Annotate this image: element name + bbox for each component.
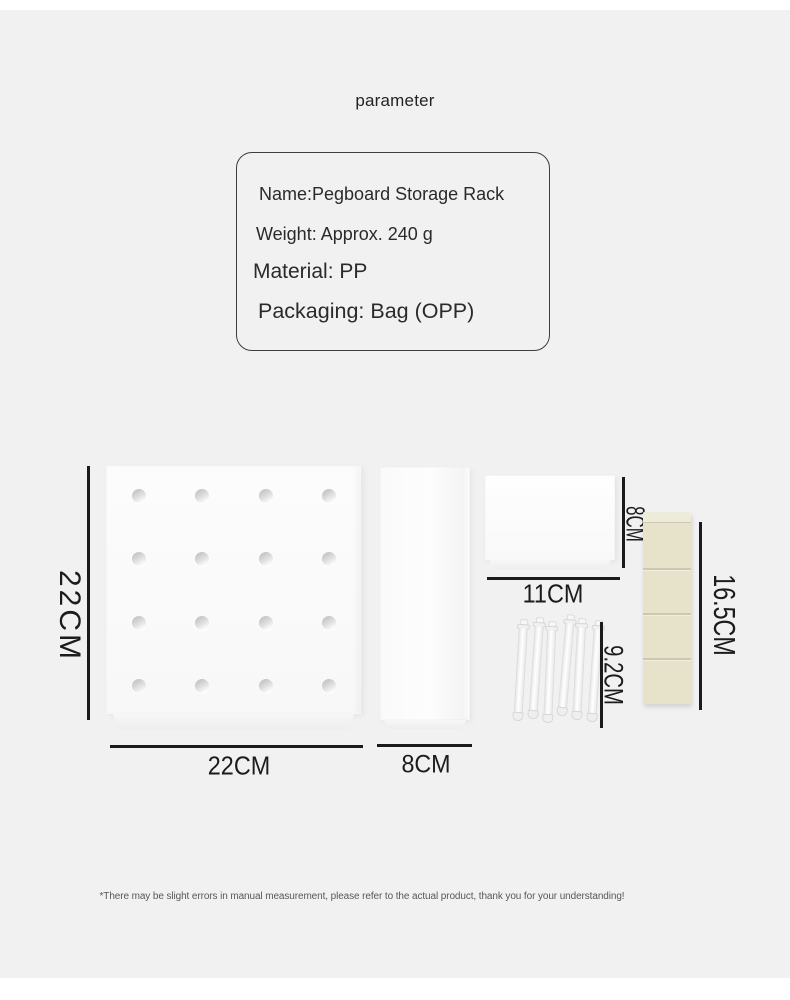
pegs-height-label: 9.2CM (598, 645, 629, 705)
pegboard-width-label: 22CM (208, 751, 270, 782)
disclaimer-text: *There may be slight errors in manual me… (0, 891, 724, 902)
peg-rod (573, 627, 586, 712)
side-panel (380, 467, 470, 720)
product-parameter-page: parameter Name:Pegboard Storage Rack Wei… (0, 0, 790, 1000)
peg-foot (586, 713, 598, 723)
adhesive-tape (643, 512, 691, 704)
peg-foot (512, 712, 524, 722)
side-panel-bottom-edge (384, 720, 466, 729)
side-panel-width-dimension-line (377, 744, 472, 747)
peg-hole (195, 552, 209, 566)
peg-hole (322, 679, 336, 693)
peg-hole (259, 616, 273, 630)
pegs-group (511, 614, 603, 732)
pegboard (106, 465, 361, 714)
peg-hole (195, 679, 209, 693)
tape-height-dimension-line (699, 522, 702, 710)
pegboard-height-label: 22CM (52, 570, 86, 662)
peg-hole (195, 489, 209, 503)
spec-box: Name:Pegboard Storage Rack Weight: Appro… (236, 152, 550, 351)
peg-hole (259, 489, 273, 503)
peg-hole (195, 616, 209, 630)
peg-hole (132, 489, 146, 503)
small-box-width-label: 11CM (523, 579, 584, 610)
spec-line-packaging: Packaging: Bag (OPP) (258, 299, 474, 324)
small-box (485, 475, 615, 560)
peg-foot (527, 710, 539, 720)
peg-foot (571, 711, 582, 721)
peg-hole (322, 616, 336, 630)
peg-hole (132, 616, 146, 630)
spec-line-name: Name:Pegboard Storage Rack (259, 184, 504, 205)
tape-height-label: 16.5CM (706, 574, 742, 655)
tape-segment-line (643, 613, 691, 615)
peg-foot (542, 714, 553, 723)
pegboard-width-dimension-line (110, 745, 363, 748)
peg-hole (132, 552, 146, 566)
tape-segment-line (643, 658, 691, 660)
spec-line-weight: Weight: Approx. 240 g (256, 224, 433, 245)
tape-segment-line (643, 568, 691, 570)
pegboard-bottom-edge (113, 714, 354, 730)
peg-hole (259, 679, 273, 693)
tape-top-fold (643, 512, 691, 523)
peg-foot (557, 707, 569, 717)
side-panel-width-label: 8CM (401, 751, 450, 780)
peg-hole (132, 679, 146, 693)
peg-rod (543, 630, 556, 715)
peg-hole (322, 552, 336, 566)
small-box-bottom-edge (489, 560, 611, 569)
spec-line-material: Material: PP (253, 260, 367, 284)
pegboard-height-dimension-line (87, 466, 90, 720)
peg-hole (259, 552, 273, 566)
peg-rod (514, 628, 528, 713)
page-title: parameter (0, 91, 790, 111)
peg-hole (322, 489, 336, 503)
